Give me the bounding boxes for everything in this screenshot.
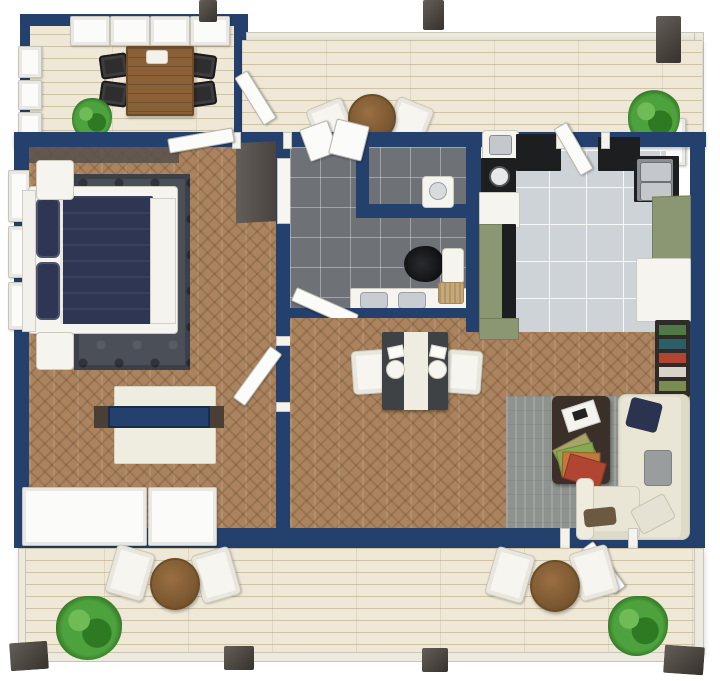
- book-row: [659, 381, 686, 391]
- deck-post: [656, 16, 681, 63]
- book-row: [659, 339, 686, 349]
- toilet-seat-icon: [404, 246, 444, 282]
- lower-deck-table: [150, 558, 200, 610]
- book-row: [659, 367, 686, 377]
- vanity-sink-basin: [398, 292, 426, 309]
- ensuite-door-leaf: [277, 158, 291, 224]
- deck-post: [663, 645, 705, 676]
- storage-basket: [438, 282, 464, 304]
- bed-foot-bench: [150, 198, 176, 324]
- vanity-sink-basin: [360, 292, 388, 309]
- deck-post: [422, 648, 448, 672]
- deck-post: [224, 646, 254, 670]
- house-wall-right: [690, 132, 705, 548]
- kitchen-sink-basin: [489, 135, 512, 155]
- cooktop-icon: [489, 166, 510, 187]
- tv-shelf-end: [208, 406, 224, 428]
- bed-pillow: [36, 262, 60, 320]
- bookshelf: [655, 320, 690, 397]
- kitchen-corner-counter: [479, 192, 520, 228]
- book-row: [659, 325, 686, 335]
- plate: [386, 360, 405, 379]
- bed-headboard: [22, 190, 36, 332]
- book-row: [659, 353, 686, 363]
- balcony-window-icon: [18, 46, 42, 78]
- sofa-pillow-brown: [583, 506, 617, 527]
- bed-pillow: [36, 198, 60, 258]
- double-sink-basin: [640, 162, 672, 182]
- lower-deck-railing-left: [18, 548, 26, 656]
- toilet-tank: [442, 248, 464, 284]
- floor-plan-canvas: [0, 0, 720, 681]
- nightstand: [36, 160, 74, 200]
- living-deck-door-jamb: [628, 528, 638, 550]
- kitchen-cabinet-green-end: [479, 318, 519, 340]
- living-deck-door-jamb: [560, 528, 570, 550]
- kitchen-tall-cabinet: [652, 195, 691, 261]
- bedroom-south-window-icon: [22, 487, 147, 546]
- balcony-window-icon: [70, 16, 110, 46]
- bedroom-south-window-icon: [148, 487, 217, 546]
- kitchen-top-counter: [516, 134, 561, 171]
- lower-deck-table: [530, 560, 580, 612]
- nightstand: [36, 332, 74, 370]
- kitchen-door-jamb: [601, 132, 610, 149]
- entry-door-jamb: [283, 132, 292, 149]
- sofa-cushion-gray: [644, 450, 672, 486]
- balcony-window-icon: [110, 16, 150, 46]
- tv-screen: [108, 406, 210, 428]
- deck-post: [9, 641, 49, 672]
- balcony-chair: [98, 52, 129, 80]
- lower-deck-railing-right: [694, 548, 704, 656]
- deck-post: [423, 0, 444, 30]
- table-dish: [146, 50, 168, 64]
- dining-chair: [445, 349, 484, 395]
- plate: [428, 360, 447, 379]
- balcony-window-icon: [18, 80, 42, 110]
- table-runner: [404, 332, 428, 410]
- lower-deck-railing-bottom: [20, 652, 704, 662]
- deck-post: [199, 0, 217, 22]
- bathroom-divider-horizontal: [356, 204, 476, 218]
- wc-sink-basin: [429, 182, 447, 200]
- bed-duvet: [60, 196, 153, 324]
- balcony-window-icon: [150, 16, 190, 46]
- refrigerator: [636, 258, 691, 322]
